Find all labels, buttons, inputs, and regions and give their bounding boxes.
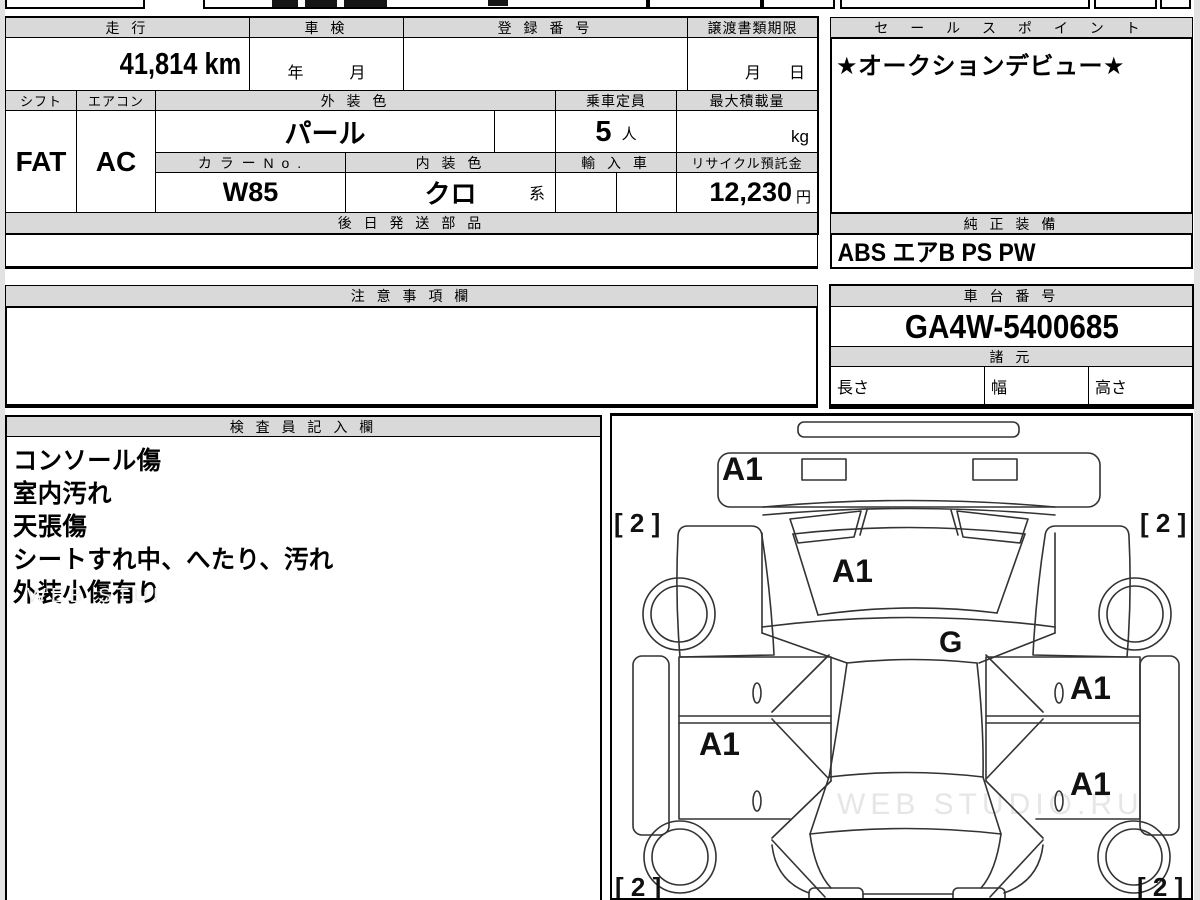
cropped-cell <box>1160 0 1191 9</box>
hood-edge-arc <box>763 509 1055 516</box>
transfer-docs-value-cell: 月日 <box>687 37 818 91</box>
inspector-note: 外装小傷有り <box>13 577 582 610</box>
capacity-value-cell: 5 人 <box>555 110 677 153</box>
later-parts-header: 後 日 発 送 部 品 <box>5 212 818 234</box>
wheel-front-right-inner <box>1107 586 1163 642</box>
interior-color-suffix: 系 <box>529 180 545 204</box>
cowl-lower-arc <box>762 618 1055 628</box>
recycle-deposit-value-cell: 12,230 円 <box>676 172 818 213</box>
inspector-header: 検 査 員 記 入 欄 <box>5 415 602 438</box>
bumper-inset-left <box>802 459 846 480</box>
recycle-deposit-value: 12,230 <box>709 177 792 208</box>
car-diagram-panel: WEB STUDIO.RU <box>610 413 1193 900</box>
roof-front-arc <box>847 660 977 664</box>
height-cell: 高さ <box>1088 366 1193 408</box>
interior-color-value-cell: クロ 系 <box>345 172 556 213</box>
length-cell: 長さ <box>830 366 985 408</box>
registration-value-cell <box>403 37 688 91</box>
spec-header: 諸 元 <box>830 346 1193 367</box>
capacity-header: 乗車定員 <box>555 90 677 111</box>
later-parts-value-cell <box>5 233 818 269</box>
door-handle <box>753 791 761 811</box>
equipment-value-cell: ABS エアB PS PW <box>830 233 1193 269</box>
page-edge-right <box>1194 0 1200 900</box>
odometer-header: 走 行 <box>5 17 250 38</box>
equipment-header: 純 正 装 備 <box>830 213 1193 234</box>
tire-mark-rear-left: [ 2 ] <box>615 872 661 898</box>
sales-point-header: セ ー ル ス ポ イ ン ト <box>830 17 1193 38</box>
exterior-color-value: パール <box>155 110 495 153</box>
bumper-inset-right <box>973 459 1017 480</box>
auction-sheet: 走 行 車 検 登 録 番 号 譲渡書類期限 41,814 km 年月 月日 シ… <box>0 0 1200 900</box>
exterior-color-header: 外 装 色 <box>155 90 556 111</box>
damage-mark-front-right-door: A1 <box>1070 670 1111 706</box>
left-window-lines <box>772 655 829 897</box>
cropped-cell <box>762 0 835 9</box>
cropped-cell <box>648 0 762 9</box>
capacity-value: 5 <box>595 118 611 147</box>
page-edge-left <box>0 0 5 900</box>
front-edge-strip <box>798 422 1019 437</box>
damage-mark-front-bumper: A1 <box>722 451 763 487</box>
tire-mark-rear-right: [ 2 ] <box>1137 872 1183 898</box>
front-fender-left <box>677 526 774 657</box>
shift-value: FAT <box>5 110 77 213</box>
notes-body <box>5 306 818 408</box>
quarter-panel-slants <box>772 781 1043 838</box>
aircon-value: AC <box>76 110 156 213</box>
cropped-cell <box>1094 0 1157 9</box>
shaken-header: 車 検 <box>249 17 404 38</box>
wheel-front-right <box>1099 578 1171 650</box>
inspector-note: コンソール傷 <box>13 445 582 478</box>
inspector-note: 室内汚れ <box>13 478 582 511</box>
interior-color-value: クロ <box>424 174 476 211</box>
registration-header: 登 録 番 号 <box>403 17 688 38</box>
equipment-value: ABS エアB PS PW <box>832 233 1036 269</box>
chassis-number-value-cell: GA4W-5400685 <box>830 306 1193 347</box>
hood-edge-arc <box>763 501 1055 508</box>
shaken-value-cell: 年月 <box>249 37 404 91</box>
cropped-text-fragment <box>272 0 298 7</box>
rear-window-arc <box>810 829 1001 835</box>
shift-header: シフト <box>5 90 77 111</box>
rear-bumper-bars <box>863 894 953 898</box>
notes-header: 注 意 事 項 欄 <box>5 285 818 307</box>
tire-mark-front-right: [ 2 ] <box>1140 508 1186 538</box>
exterior-color-extra-cell <box>494 110 556 153</box>
cowl-center <box>860 510 958 535</box>
color-no-header: カ ラ ー N o . <box>155 152 346 173</box>
import-header: 輸 入 車 <box>555 152 677 173</box>
rear-window-sides <box>810 777 1001 834</box>
cropped-cell <box>5 0 145 9</box>
front-fender-right <box>1033 526 1130 657</box>
width-cell: 幅 <box>984 366 1089 408</box>
cropped-cell <box>203 0 648 9</box>
chassis-number-value: GA4W-5400685 <box>904 308 1118 346</box>
cowl-vent-right <box>957 511 1028 543</box>
sales-point-value: ★オークションデビュー★ <box>832 39 1191 88</box>
color-no-value: W85 <box>155 172 346 213</box>
inspector-note: 天張傷 <box>13 511 582 544</box>
damage-mark-rear-left-door: A1 <box>699 726 740 762</box>
roof-rear-arc <box>829 773 983 778</box>
damage-mark-windshield: G <box>939 626 962 659</box>
cropped-cell <box>840 0 1090 9</box>
cabin-sides <box>829 663 983 777</box>
side-sill-right <box>1140 656 1179 835</box>
transfer-docs-header: 譲渡書類期限 <box>687 17 818 38</box>
windshield-bottom-arc <box>818 608 997 615</box>
odometer-value: 41,814 km <box>119 46 241 82</box>
a-pillar-lines <box>762 633 1055 663</box>
odometer-value-cell: 41,814 km <box>5 37 250 91</box>
inspector-body: コンソール傷 室内汚れ 天張傷 シートすれ中、へたり、汚れ 外装小傷有り WEB… <box>5 437 602 900</box>
import-value-cell-2 <box>616 172 677 213</box>
trunk-sides <box>810 834 1001 888</box>
recycle-deposit-header: リサイクル預託金 <box>676 152 818 173</box>
damage-mark-hood: A1 <box>832 553 873 589</box>
door-divider-lines <box>679 716 1140 723</box>
sales-point-body: ★オークションデビュー★ <box>830 37 1193 214</box>
door-handle <box>753 683 761 703</box>
import-value-cell <box>555 172 617 213</box>
windshield-sides <box>793 534 1025 615</box>
door-handle <box>1055 791 1063 811</box>
cowl-vent-left <box>790 511 861 543</box>
side-sill-left <box>633 656 669 835</box>
chassis-number-header: 車 台 番 号 <box>830 285 1193 307</box>
cropped-text-fragment <box>344 0 387 7</box>
front-bumper <box>718 453 1100 507</box>
car-top-view-diagram: A1 A1 G A1 A1 A1 [ 2 ] [ 2 ] [ 2 ] [ 2 ] <box>612 416 1191 898</box>
max-load-header: 最大積載量 <box>676 90 818 111</box>
inspector-note: シートすれ中、へたり、汚れ <box>13 544 582 577</box>
door-panel-right <box>986 657 1140 819</box>
cropped-text-fragment <box>305 0 337 7</box>
door-handle <box>1055 683 1063 703</box>
cropped-text-fragment <box>488 0 508 6</box>
aircon-header: エアコン <box>76 90 156 111</box>
windshield-top-arc <box>793 528 1025 535</box>
max-load-value-cell: kg <box>676 110 818 153</box>
damage-mark-rear-right-door: A1 <box>1070 766 1111 802</box>
tire-mark-front-left: [ 2 ] <box>614 508 660 538</box>
interior-color-header: 内 装 色 <box>345 152 556 173</box>
